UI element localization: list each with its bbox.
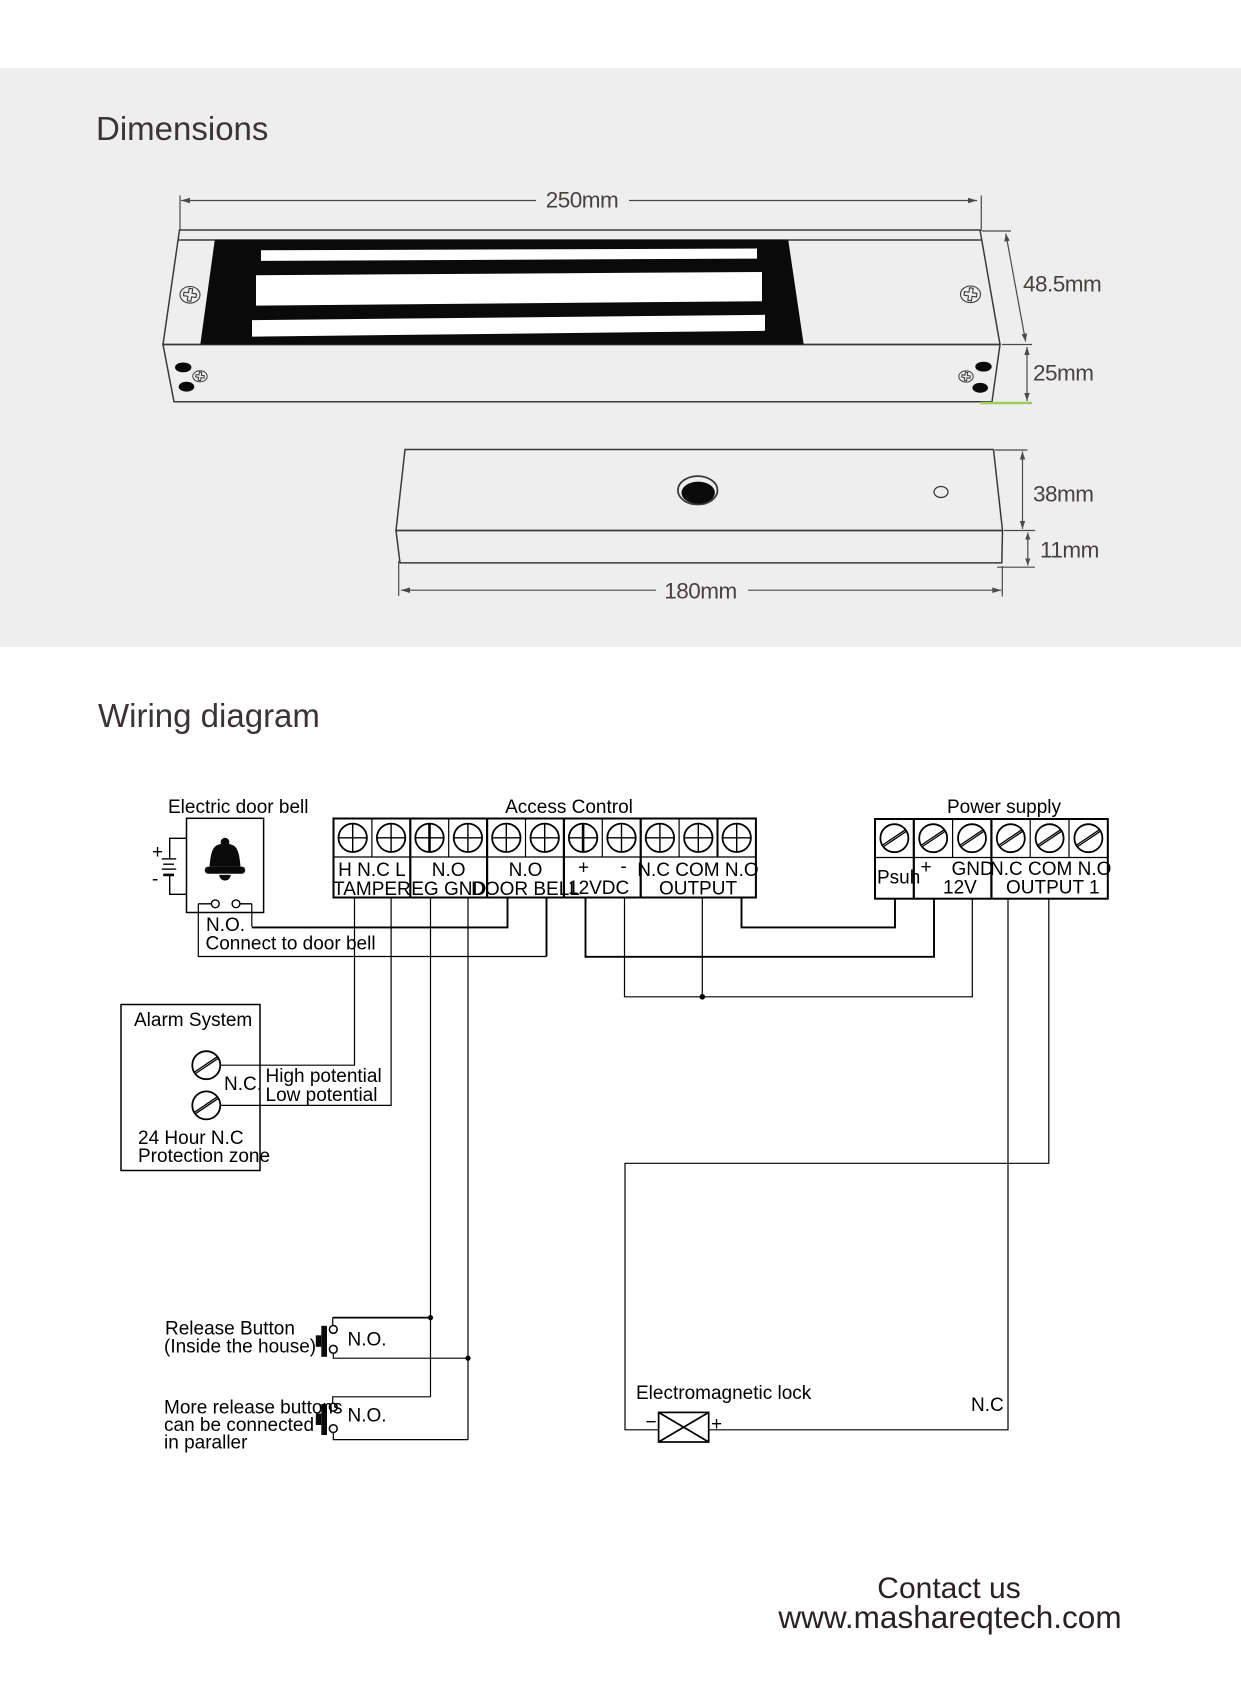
svg-text:Electric door bell: Electric door bell (168, 797, 308, 818)
svg-text:H N.C L: H N.C L (338, 860, 406, 881)
svg-text:N.O: N.O (509, 860, 543, 881)
svg-text:N.O.: N.O. (348, 1330, 387, 1351)
svg-text:OUTPUT 1: OUTPUT 1 (1006, 878, 1100, 899)
svg-text:Power supply: Power supply (947, 797, 1062, 818)
svg-text:Wiring diagram: Wiring diagram (98, 697, 320, 734)
svg-text:250mm: 250mm (546, 188, 619, 213)
svg-text:180mm: 180mm (664, 578, 737, 603)
svg-text:Connect to door bell: Connect to door bell (206, 934, 376, 955)
svg-text:25mm: 25mm (1033, 361, 1094, 386)
svg-text:N.C.: N.C. (224, 1074, 262, 1095)
svg-text:Low potential: Low potential (266, 1085, 378, 1106)
svg-text:N.O: N.O (432, 860, 466, 881)
svg-text:Dimensions: Dimensions (96, 110, 268, 147)
svg-text:-: - (152, 869, 158, 890)
svg-text:Psuh: Psuh (877, 868, 920, 889)
svg-text:N.C: N.C (971, 1395, 1004, 1416)
svg-text:(Inside the house): (Inside the house) (164, 1337, 316, 1358)
svg-text:-: - (620, 857, 626, 878)
svg-text:Alarm System: Alarm System (134, 1010, 252, 1031)
svg-text:12V: 12V (943, 878, 977, 899)
svg-text:Protection zone: Protection zone (138, 1146, 270, 1167)
svg-text:38mm: 38mm (1033, 482, 1094, 507)
svg-text:DOOR BELL: DOOR BELL (471, 879, 580, 900)
svg-text:+: + (920, 857, 931, 878)
svg-text:+: + (152, 842, 163, 863)
svg-text:N.O.: N.O. (348, 1406, 387, 1427)
svg-text:12VDC: 12VDC (568, 878, 629, 899)
svg-text:11mm: 11mm (1040, 538, 1099, 563)
svg-text:Access Control: Access Control (505, 797, 633, 818)
svg-text:+: + (711, 1414, 722, 1435)
svg-text:OUTPUT: OUTPUT (659, 879, 738, 900)
svg-text:−: − (646, 1412, 657, 1433)
svg-text:+: + (578, 858, 589, 879)
svg-text:Electromagnetic lock: Electromagnetic lock (636, 1383, 812, 1404)
svg-text:TAMPER: TAMPER (333, 879, 411, 900)
svg-text:www.mashareqtech.com: www.mashareqtech.com (777, 1599, 1121, 1635)
svg-text:High potential: High potential (266, 1066, 382, 1087)
svg-text:48.5mm: 48.5mm (1023, 272, 1101, 297)
svg-text:in paraller: in paraller (164, 1433, 248, 1454)
